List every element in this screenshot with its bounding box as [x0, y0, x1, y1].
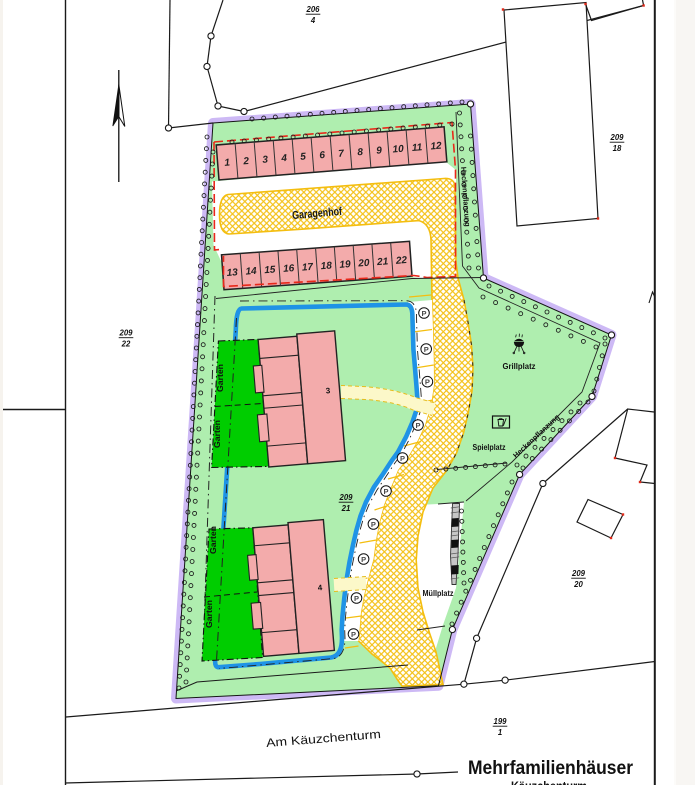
svg-text:19: 19 — [339, 259, 351, 271]
svg-text:13: 13 — [226, 267, 238, 279]
svg-text:22: 22 — [395, 255, 408, 267]
svg-text:209: 209 — [571, 568, 585, 578]
svg-text:18: 18 — [613, 143, 622, 153]
svg-text:4: 4 — [280, 153, 288, 165]
svg-text:P: P — [361, 555, 366, 564]
svg-text:15: 15 — [264, 264, 276, 276]
svg-text:4: 4 — [310, 15, 315, 25]
svg-text:199: 199 — [494, 716, 507, 726]
svg-text:Grillplatz: Grillplatz — [503, 361, 536, 371]
svg-text:P: P — [424, 345, 429, 354]
svg-text:Garten: Garten — [205, 600, 214, 628]
svg-text:16: 16 — [283, 263, 295, 275]
svg-text:18: 18 — [320, 260, 332, 272]
svg-text:20: 20 — [357, 258, 370, 270]
svg-text:206: 206 — [306, 4, 320, 14]
svg-text:14: 14 — [245, 266, 257, 278]
svg-text:P: P — [383, 487, 388, 496]
svg-text:P: P — [425, 378, 430, 387]
svg-text:21: 21 — [376, 256, 389, 268]
svg-text:P: P — [421, 309, 426, 318]
svg-text:Garten: Garten — [213, 420, 222, 448]
svg-text:Käuzchenturm: Käuzchenturm — [511, 779, 587, 786]
svg-text:21: 21 — [341, 503, 351, 513]
svg-text:12: 12 — [430, 141, 442, 153]
svg-text:2: 2 — [242, 156, 250, 168]
svg-text:P: P — [415, 421, 420, 430]
svg-text:Müllplatz: Müllplatz — [423, 588, 454, 598]
svg-text:P: P — [371, 520, 376, 529]
svg-text:1: 1 — [498, 727, 503, 737]
svg-text:17: 17 — [301, 262, 313, 274]
svg-text:Garten: Garten — [216, 364, 225, 392]
svg-text:11: 11 — [411, 142, 423, 154]
svg-text:Mehrfamilienhäuser: Mehrfamilienhäuser — [468, 758, 634, 779]
svg-text:P: P — [354, 594, 359, 603]
svg-text:P: P — [351, 630, 356, 639]
svg-text:20: 20 — [573, 579, 583, 589]
svg-text:209: 209 — [119, 328, 133, 338]
svg-text:209: 209 — [610, 132, 624, 142]
svg-text:P: P — [400, 454, 405, 463]
svg-text:209: 209 — [339, 492, 353, 502]
svg-text:22: 22 — [121, 338, 131, 348]
svg-text:Spielplatz: Spielplatz — [473, 442, 506, 452]
svg-text:10: 10 — [392, 144, 404, 156]
svg-text:Garten: Garten — [209, 526, 218, 554]
